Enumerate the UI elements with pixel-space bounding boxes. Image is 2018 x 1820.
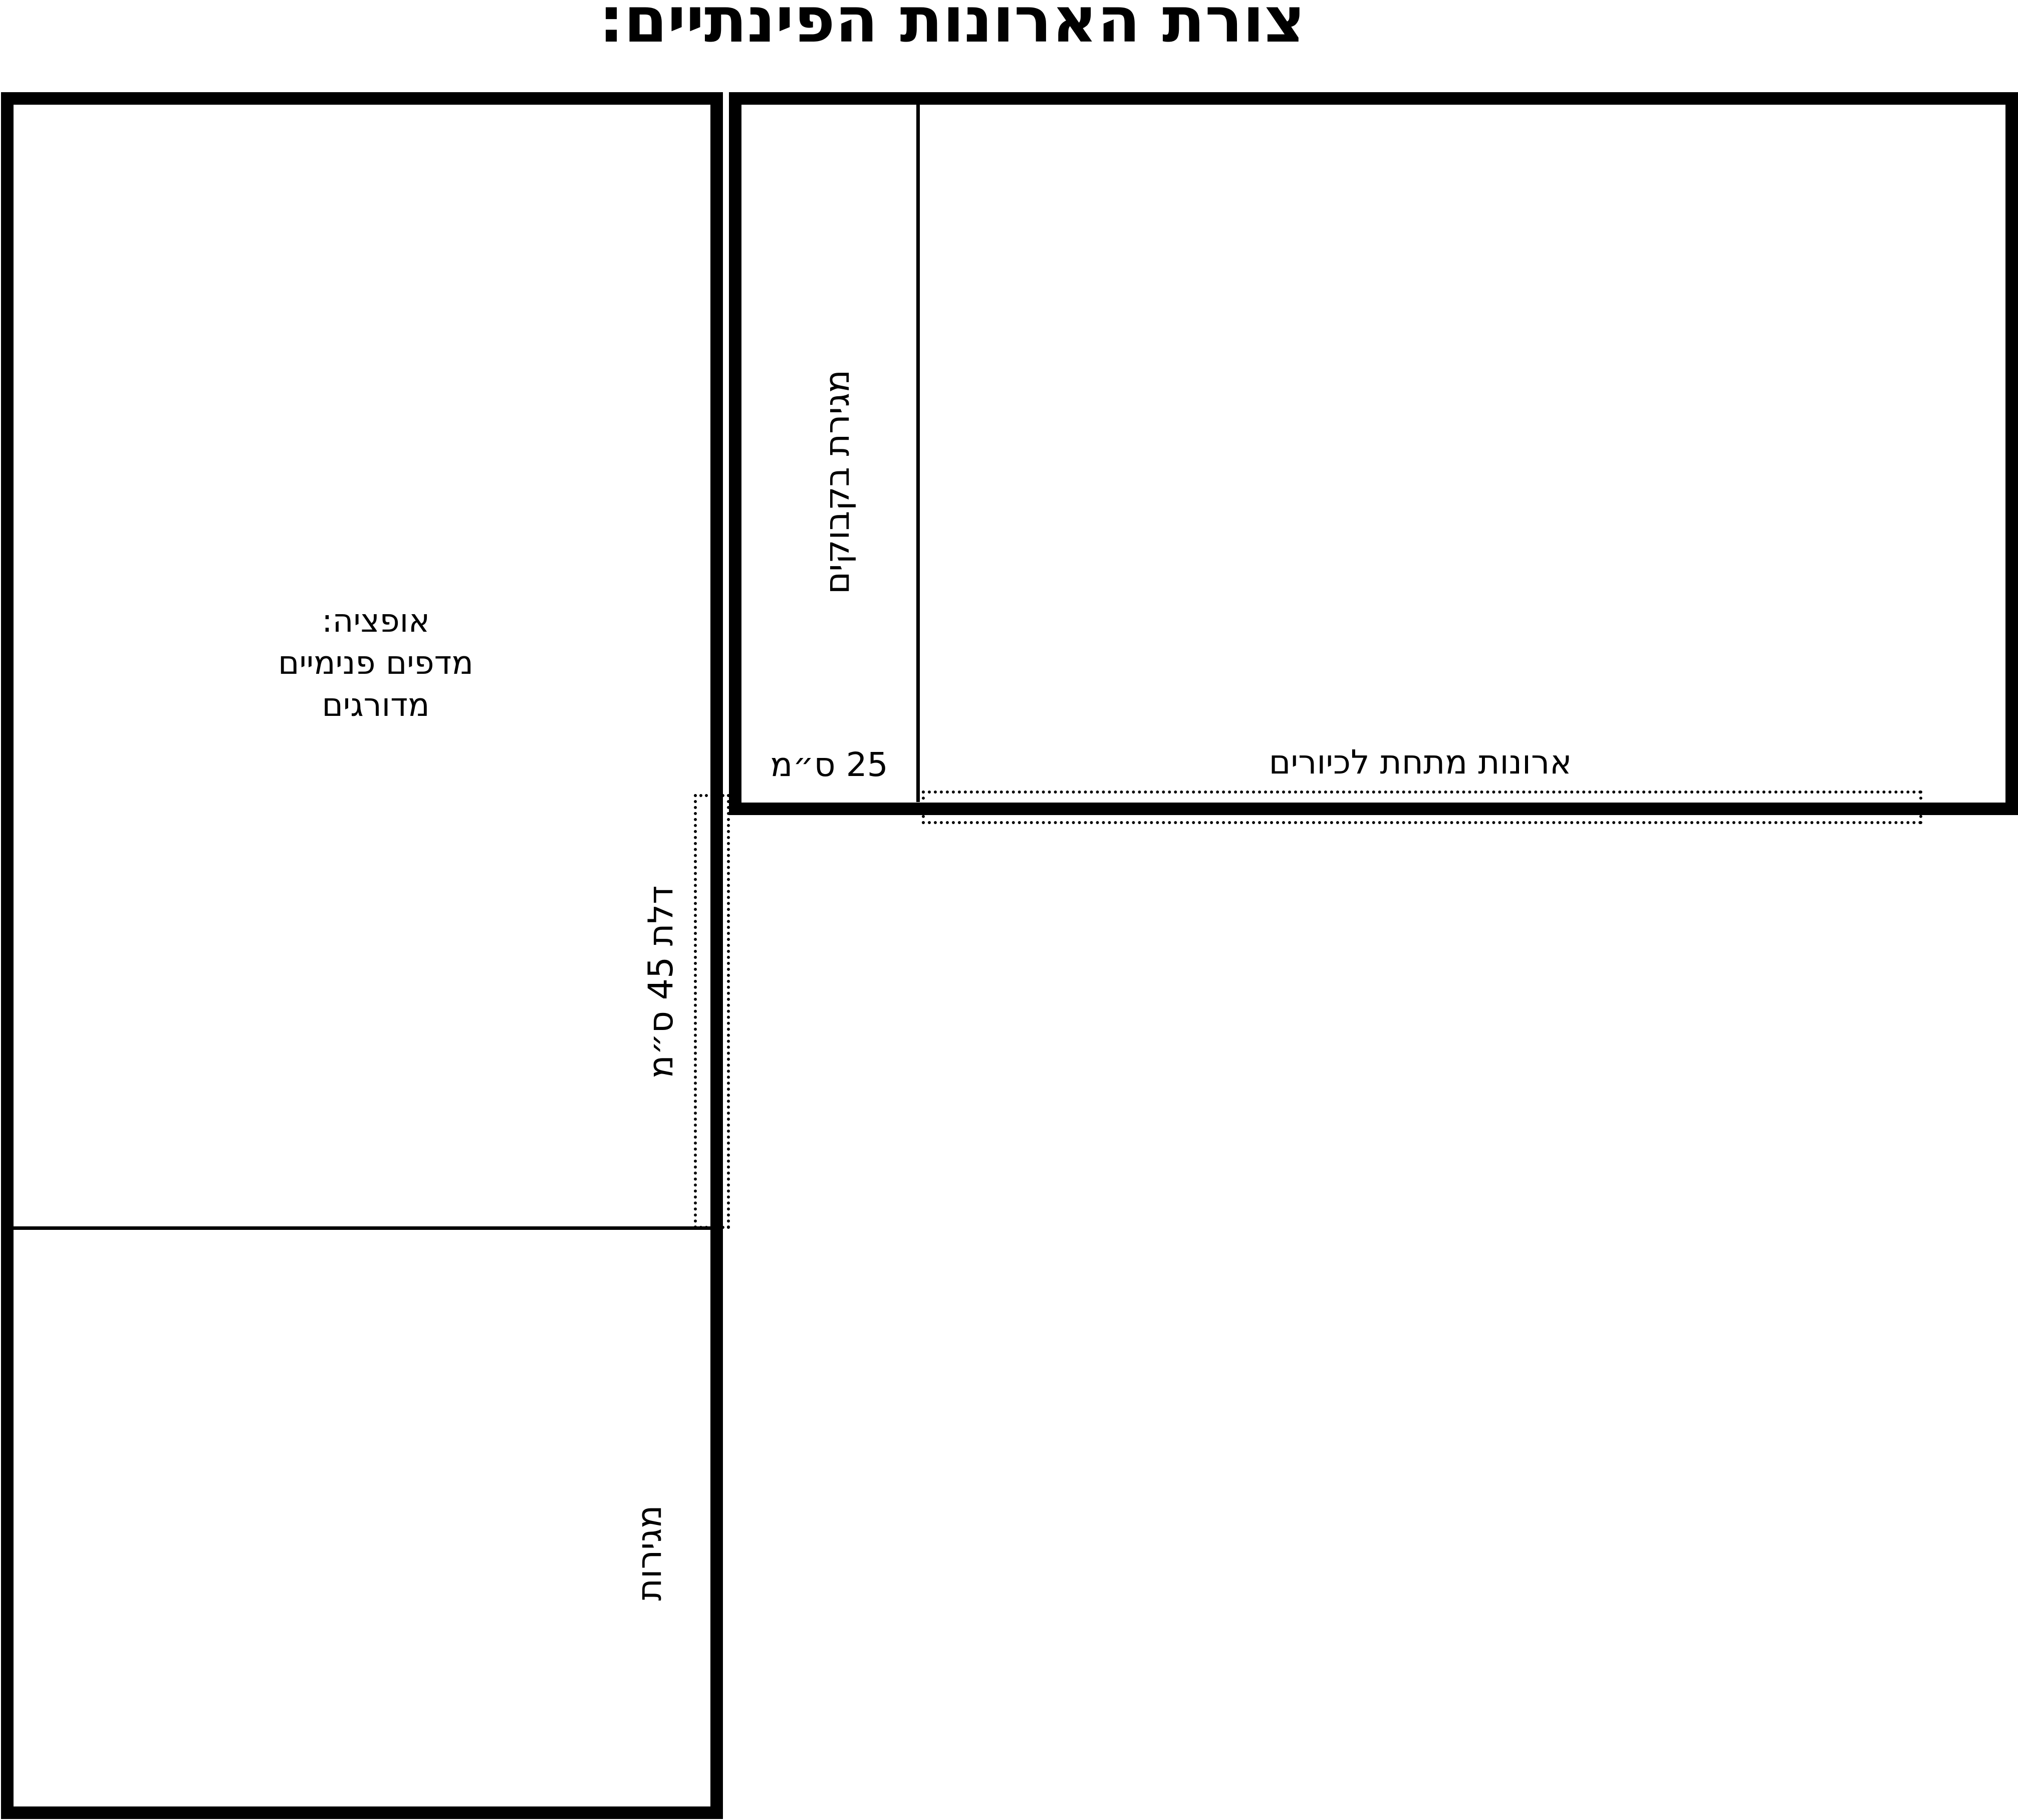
bottle-drawer-label: מגירת בקבוקים	[820, 332, 855, 632]
option-note-line1: אופציה:	[20, 600, 731, 642]
option-note-line2: מדפים פנימיים	[20, 642, 731, 684]
plinth-dashed-outline	[922, 791, 1922, 824]
diagram-title: צורת הארונות הפינתיים:	[501, 0, 1403, 58]
option-note-line3: מדורגים	[20, 684, 731, 726]
option-note: אופציה: מדפים פנימיים מדורגים	[20, 600, 731, 726]
bottle-drawer-divider-line	[916, 105, 920, 802]
drawers-label: מגירות	[632, 1428, 667, 1678]
door-label: דלת 45 ס״מ	[644, 857, 679, 1107]
shelf-divider-line	[14, 1226, 710, 1230]
sink-cabinets-label: ארונות מתחת לכיורים	[1197, 744, 1643, 781]
bottle-drawer-width-label: 25 ס״מ	[744, 746, 914, 784]
sink-base-cabinet-outline	[729, 92, 2018, 815]
tall-cabinet-outline	[1, 92, 723, 1819]
corner-cabinets-diagram: צורת הארונות הפינתיים: אופציה: מדפים פני…	[0, 0, 2018, 1820]
door-dashed-outline	[694, 794, 730, 1229]
